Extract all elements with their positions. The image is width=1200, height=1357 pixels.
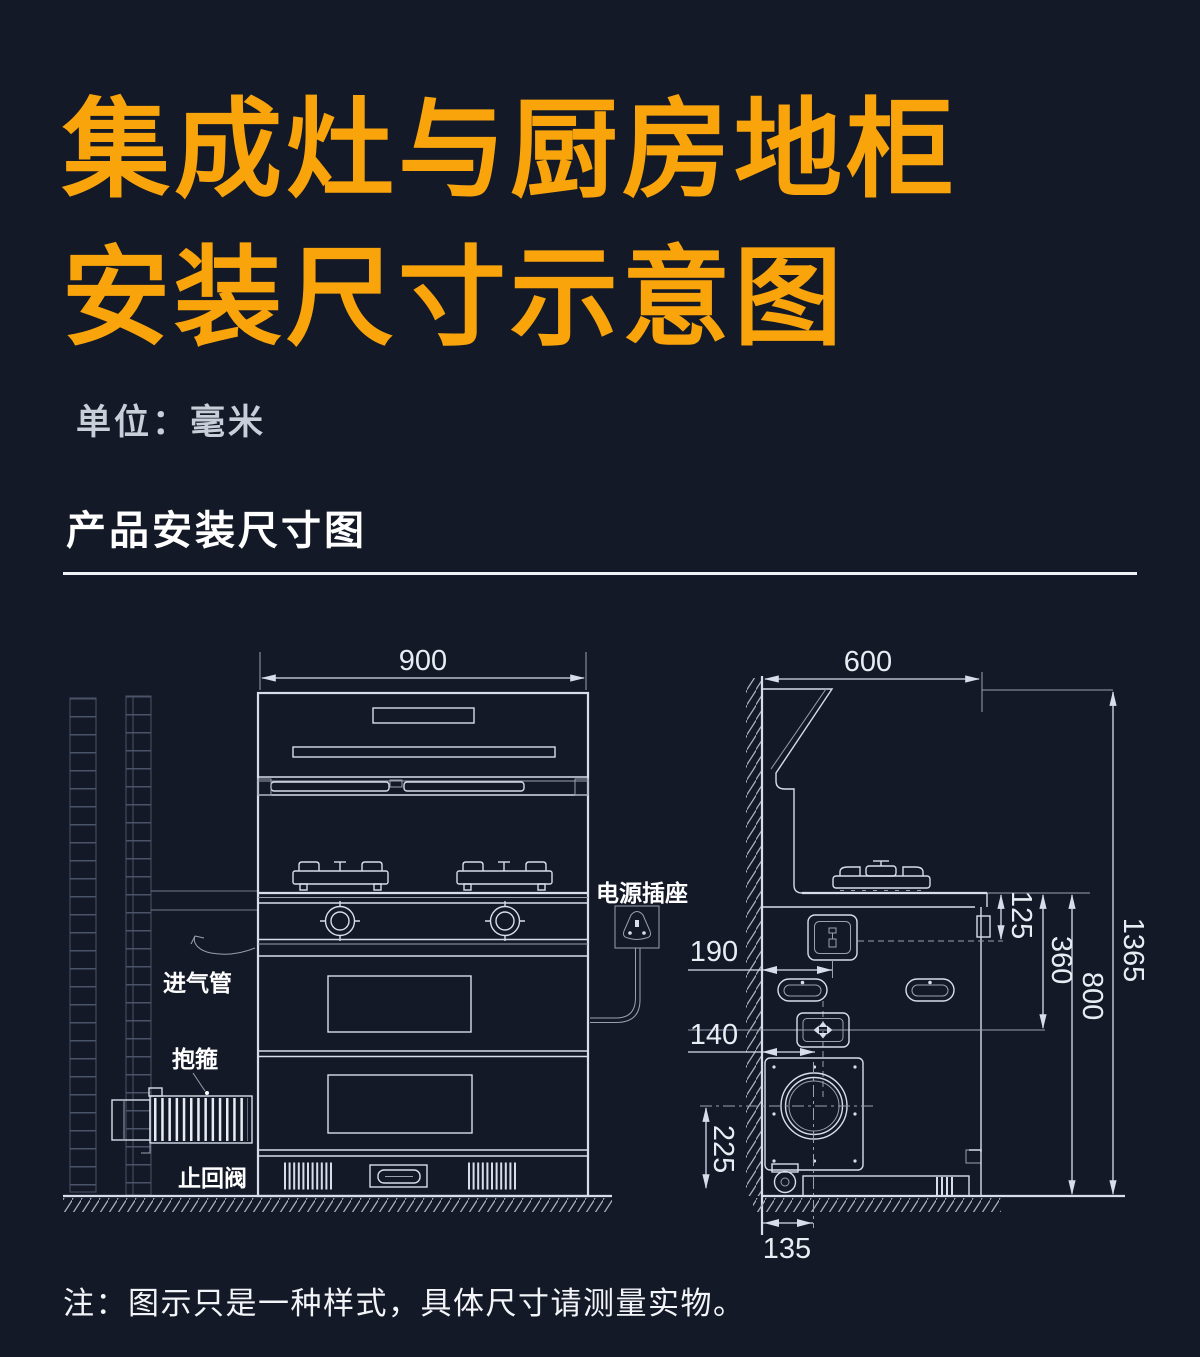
- total-height-dim-label: 1365: [1117, 918, 1149, 983]
- base-handle-icon: [370, 1165, 427, 1187]
- socket-distance-dim-label: 190: [690, 936, 738, 968]
- section-title: 产品安装尺寸图: [66, 498, 367, 556]
- base-plinth: [803, 1150, 981, 1196]
- hood-profile: [762, 689, 832, 893]
- control-knob-right-icon: [485, 901, 525, 941]
- dim-125-label: 125: [1005, 891, 1037, 939]
- page: 集成灶与厨房地柜 安装尺寸示意图 单位：毫米 产品安装尺寸图: [0, 0, 1200, 1357]
- footnote: 注：图示只是一种样式，具体尺寸请测量实物。: [63, 1278, 746, 1323]
- unit-label: 单位：毫米: [76, 394, 266, 445]
- side-view: 600 1365 800 360 125 225 190: [688, 646, 1149, 1265]
- depth-dim-label: 600: [844, 646, 892, 678]
- power-plug-icon: [624, 912, 651, 940]
- suction-slot: [293, 747, 555, 757]
- title-line-1: 集成灶与厨房地柜: [62, 76, 958, 224]
- title-line-2: 安装尺寸示意图: [62, 224, 958, 372]
- wall-hatch: [746, 678, 761, 1196]
- hood-inner-line: [771, 689, 826, 769]
- front-width-dimension: 900: [260, 645, 586, 690]
- flue-pipe-icon: [70, 696, 151, 1195]
- clamp-leader-dot: [205, 1091, 209, 1095]
- front-view: 900 进气管 抱箍 止回阀: [63, 645, 612, 1212]
- display-panel: [373, 708, 474, 723]
- socket-box-icon: [808, 915, 857, 960]
- air-inlet-label: 进气管: [163, 970, 232, 996]
- power-socket-group: 电源插座: [590, 880, 688, 1023]
- gas-hose: [194, 936, 255, 954]
- burner-left-icon: [293, 862, 388, 890]
- duct-lines: [151, 891, 258, 910]
- vent-slot-right-icon: [906, 979, 954, 1001]
- control-knob-left-icon: [320, 901, 360, 941]
- front-clip: [977, 916, 990, 937]
- power-cable: [590, 948, 636, 1018]
- counter-height-dim-label: 800: [1076, 972, 1108, 1020]
- divider-line: [63, 572, 1137, 575]
- valve-distance-dim-label: 140: [690, 1019, 738, 1051]
- caster-wheel-icon: [772, 1164, 798, 1193]
- vent-slot-left-icon: [778, 979, 827, 1001]
- vent-strip: [258, 779, 588, 795]
- installation-diagram: 900 进气管 抱箍 止回阀 电源插座: [0, 615, 1200, 1275]
- front-foot: [966, 1150, 981, 1163]
- clamp-label: 抱箍: [172, 1046, 218, 1072]
- page-title: 集成灶与厨房地柜 安装尺寸示意图: [62, 76, 958, 372]
- gas-hose-end: [191, 936, 204, 944]
- dim-360-label: 360: [1045, 936, 1077, 984]
- burner-right-icon: [457, 862, 552, 890]
- check-valve-label: 止回阀: [178, 1165, 247, 1191]
- front-width-dim-label: 900: [399, 645, 447, 677]
- lower-oven-window: [328, 1075, 472, 1133]
- fan-distance-dim-label: 135: [763, 1233, 811, 1265]
- burner-side-icon: [833, 861, 930, 891]
- power-socket-label: 电源插座: [596, 880, 688, 906]
- ground-hatch-left: [63, 1198, 612, 1212]
- fan-height-dim-label: 225: [707, 1125, 739, 1173]
- floor-hatch: [753, 1198, 1001, 1212]
- upper-oven-window: [328, 976, 471, 1032]
- fan-distance-dimension: 135: [762, 1219, 813, 1265]
- clamp-leader-line: [193, 1073, 205, 1091]
